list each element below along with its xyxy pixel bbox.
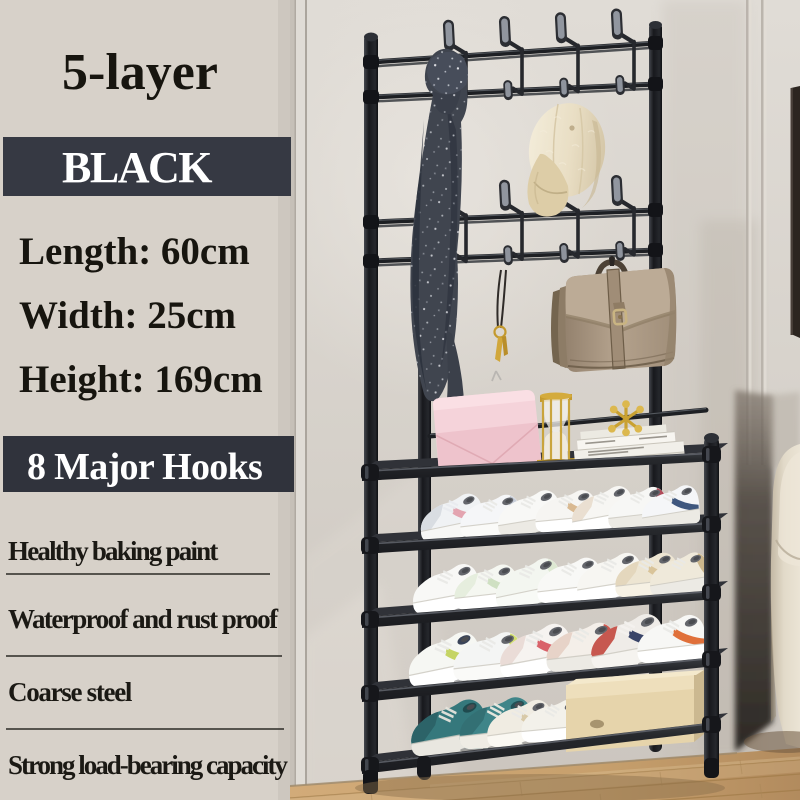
svg-text:5-layer: 5-layer [62, 44, 218, 101]
svg-text:Healthy baking paint: Healthy baking paint [8, 536, 218, 566]
svg-text:Width: 25cm: Width: 25cm [19, 294, 236, 337]
svg-text:Height: 169cm: Height: 169cm [19, 358, 263, 401]
svg-text:8 Major Hooks: 8 Major Hooks [27, 446, 262, 488]
svg-text:Waterproof and rust proof: Waterproof and rust proof [8, 604, 279, 634]
svg-text:BLACK: BLACK [62, 143, 212, 192]
svg-text:Length: 60cm: Length: 60cm [19, 230, 250, 273]
svg-text:Coarse steel: Coarse steel [8, 677, 133, 707]
svg-text:Strong load-bearing capacity: Strong load-bearing capacity [8, 750, 289, 780]
